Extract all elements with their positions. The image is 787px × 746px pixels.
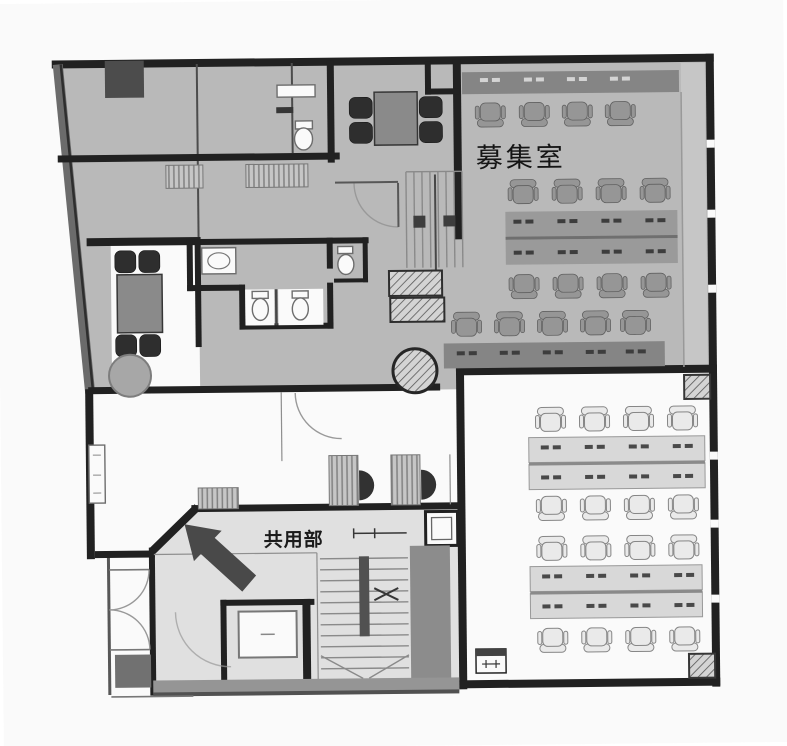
floor-plan-drawing: 募集室 共用部: [0, 0, 787, 746]
scan-noise: [0, 0, 787, 746]
floor-plan-page: 募集室 共用部: [0, 0, 787, 746]
